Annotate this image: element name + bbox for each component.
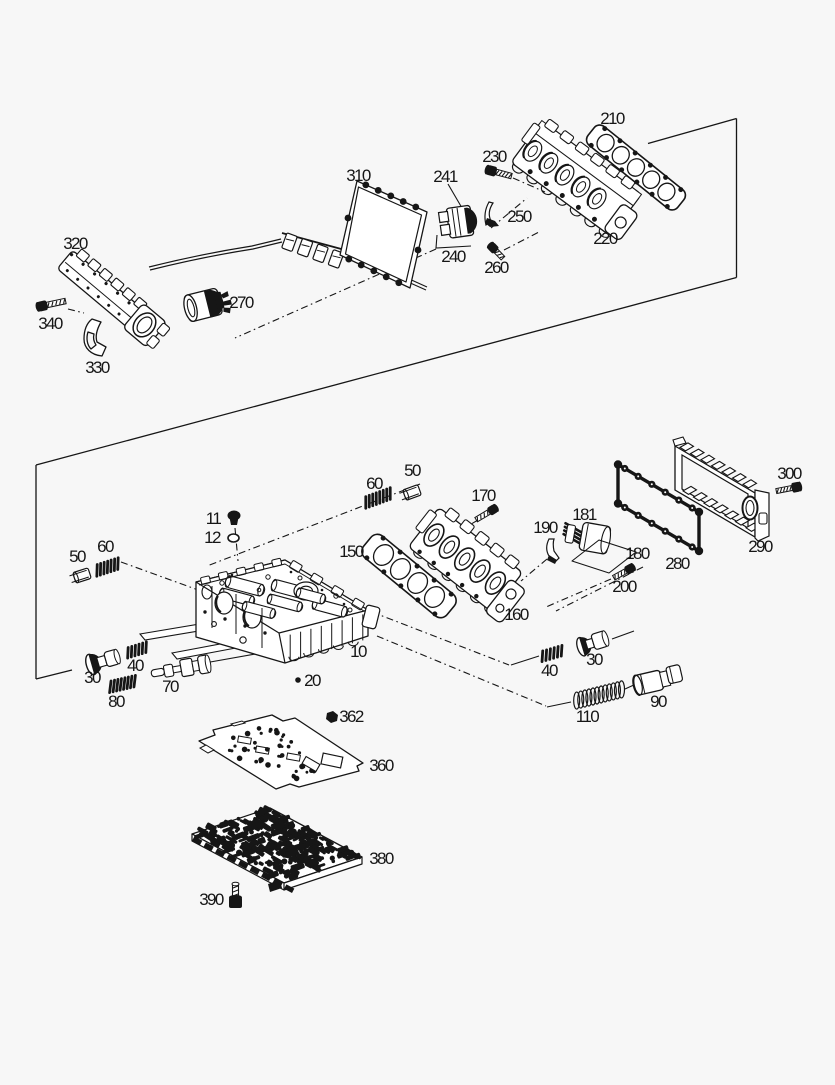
svg-text:220: 220 <box>593 229 618 248</box>
svg-text:40: 40 <box>541 661 558 680</box>
svg-text:210: 210 <box>600 109 625 128</box>
svg-text:360: 360 <box>369 756 394 775</box>
svg-text:280: 280 <box>665 554 690 573</box>
svg-text:150: 150 <box>339 542 364 561</box>
svg-text:160: 160 <box>504 605 529 624</box>
svg-text:230: 230 <box>482 147 507 166</box>
svg-text:40: 40 <box>127 656 144 675</box>
svg-text:30: 30 <box>84 668 101 687</box>
svg-text:50: 50 <box>69 547 86 566</box>
svg-text:300: 300 <box>777 464 802 483</box>
svg-text:260: 260 <box>484 258 509 277</box>
svg-text:60: 60 <box>366 474 383 493</box>
svg-text:181: 181 <box>572 505 597 524</box>
svg-text:390: 390 <box>199 890 224 909</box>
svg-text:90: 90 <box>650 692 667 711</box>
svg-text:340: 340 <box>38 314 63 333</box>
svg-text:10: 10 <box>350 642 367 661</box>
svg-text:190: 190 <box>533 518 558 537</box>
svg-text:200: 200 <box>612 577 637 596</box>
svg-text:330: 330 <box>85 358 110 377</box>
svg-text:60: 60 <box>97 537 114 556</box>
svg-text:320: 320 <box>63 234 88 253</box>
svg-text:310: 310 <box>346 166 371 185</box>
svg-text:241: 241 <box>433 167 458 186</box>
svg-text:70: 70 <box>162 677 179 696</box>
svg-text:20: 20 <box>304 671 321 690</box>
svg-text:290: 290 <box>748 537 773 556</box>
svg-text:250: 250 <box>507 207 532 226</box>
svg-text:110: 110 <box>576 707 599 726</box>
svg-text:170: 170 <box>471 486 496 505</box>
svg-text:380: 380 <box>369 849 394 868</box>
svg-text:11: 11 <box>206 509 222 528</box>
svg-text:30: 30 <box>586 650 603 669</box>
svg-text:240: 240 <box>441 247 466 266</box>
svg-text:80: 80 <box>108 692 125 711</box>
svg-text:270: 270 <box>229 293 254 312</box>
svg-text:180: 180 <box>625 544 650 563</box>
svg-text:12: 12 <box>204 528 221 547</box>
svg-text:50: 50 <box>404 461 421 480</box>
svg-text:362: 362 <box>339 707 364 726</box>
